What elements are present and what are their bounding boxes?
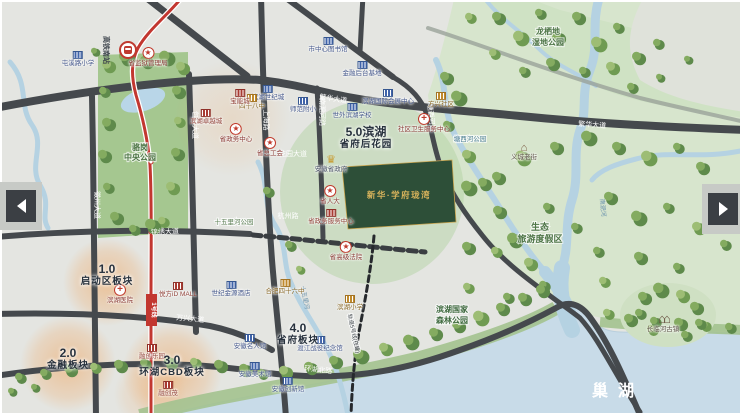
poi-icon: [263, 85, 273, 93]
map-poi: ⌂⌂ 长临河古镇: [647, 313, 680, 333]
poi-icon: ★: [142, 47, 154, 59]
poi-icon: [280, 279, 290, 287]
frame-top: [0, 0, 740, 2]
map-poi: 安徽创新馆: [272, 377, 305, 393]
poi-icon: [283, 377, 293, 385]
poi-icon: ⌂⌂: [658, 313, 668, 325]
poi-label: 安徽创新馆: [272, 386, 305, 393]
poi-label: 省高级法院: [330, 254, 363, 261]
poi-icon: [323, 37, 333, 45]
poi-label: 悦方iD MALL: [159, 291, 197, 298]
map-stage: 新华·学府珑湾 繁华大道繁华大道锦绣大道万兴大道花园大道杭州路环湖北路徽州大道包…: [0, 0, 740, 418]
area-label: 塘西河公园: [454, 134, 487, 143]
poi-icon: ★: [340, 241, 352, 253]
area-label: 十五里河公园: [215, 217, 254, 226]
poi-label: 省人大: [320, 198, 340, 205]
map-poi: ★ 省政务中心: [220, 123, 253, 143]
area-label: 滨湖国家: [436, 304, 469, 314]
poi-icon: [73, 51, 83, 59]
map-poi: + 滨湖医院: [107, 284, 133, 304]
poi-icon: ★: [324, 185, 336, 197]
poi-icon: +: [418, 113, 430, 125]
area-label: 森林公园: [436, 315, 468, 325]
poi-icon: [173, 282, 183, 290]
poi-label: 省政务中心: [220, 136, 253, 143]
poi-label: 方兴社区: [428, 101, 454, 108]
map-poi: 世纪金源酒店: [212, 281, 251, 297]
poi-label: 合肥四十六中: [266, 288, 305, 295]
area-label: 龙栖地: [535, 26, 560, 36]
map-poi: 屯溪路小学: [62, 51, 95, 67]
district-section-label: 2.0 金融板块: [47, 347, 89, 371]
poi-icon: [357, 61, 367, 69]
map-poi: ★ 省高级法院: [330, 241, 363, 261]
poi-label: 长临河古镇: [647, 326, 680, 333]
area-label: 中央公园: [124, 152, 156, 162]
road-label: 上海路: [262, 110, 271, 131]
poi-label: 屯溪路小学: [62, 60, 95, 67]
poi-label: 省总工会: [257, 150, 283, 157]
poi-icon: [347, 103, 357, 111]
district-section-label: 3.0 环湖CBD板块: [139, 354, 205, 378]
road-label: 徽州大道: [93, 191, 102, 219]
map-poi: ⌂ 义城老街: [511, 143, 537, 161]
left-arrow-icon: [17, 199, 26, 213]
hsr-station-icon: [119, 41, 137, 59]
poi-icon: [345, 295, 355, 303]
map-poi: 世外滨湖学校: [333, 103, 372, 119]
road-label: 杭州路: [278, 211, 299, 220]
road-label: 南淝河路: [318, 98, 327, 126]
map-poi: ★ 省总工会: [257, 137, 283, 157]
poi-label: 金融后台基地: [343, 70, 382, 77]
project-parcel: 新华·学府珑湾: [342, 160, 456, 229]
poi-label: 安徽名人馆: [234, 343, 267, 350]
area-label: 湿地公园: [532, 37, 564, 47]
poi-icon: ♛: [326, 155, 336, 165]
poi-label: 省监狱管理局: [129, 60, 168, 67]
poi-icon: ⌂: [521, 143, 528, 153]
map-poi: + 社区卫生服务中心: [398, 113, 450, 133]
district-section-label: 5.0滨湖 省府后花园: [340, 126, 393, 150]
poi-icon: [163, 381, 173, 389]
area-label: 生态: [531, 221, 549, 232]
poi-icon: [250, 362, 260, 370]
poi-icon: [298, 97, 308, 105]
poi-label: 滨湖医院: [107, 297, 133, 304]
poi-label: 滨湖卓越城: [190, 118, 223, 125]
map-poi: 安徽名人馆: [234, 334, 267, 350]
map-poi: 金融后台基地: [343, 61, 382, 77]
frame-bottom: [0, 413, 740, 418]
poi-icon: [147, 344, 157, 352]
poi-label: 安徽省政府: [315, 166, 348, 173]
poi-label: 义城老街: [511, 154, 537, 161]
area-label: 1号线: [150, 302, 158, 317]
map-poi: ♛ 安徽省政府: [315, 155, 348, 173]
poi-label: 省政务服务中心: [308, 218, 354, 225]
map-poi: 省政务服务中心: [308, 209, 354, 225]
poi-label: 市中心图书馆: [309, 46, 348, 53]
project-name: 新华·学府珑湾: [367, 190, 431, 200]
poi-icon: [201, 109, 211, 117]
area-label: 骆岗: [132, 142, 148, 152]
poi-icon: ★: [264, 137, 276, 149]
map-poi: ★ 省人大: [320, 185, 340, 205]
map-poi: 安徽美术馆: [239, 362, 272, 378]
poi-label: 融创茂: [158, 390, 178, 397]
map-poi: 方兴社区: [428, 92, 454, 108]
poi-label: 安徽美术馆: [239, 371, 272, 378]
map-poi: 合肥四十六中: [266, 279, 305, 295]
map-poi: 宝能城: [230, 89, 250, 105]
poi-label: 社区卫生服务中心: [398, 126, 450, 133]
poi-label: 世纪金源酒店: [212, 290, 251, 297]
poi-label: 渡江战役纪念馆: [297, 345, 343, 352]
poi-label: 师范附小: [290, 106, 316, 113]
area-label: 旅游度假区: [517, 233, 562, 244]
train-icon: [124, 46, 132, 54]
district-section-label: 1.0 启动区板块: [81, 263, 134, 287]
poi-icon: [226, 281, 236, 289]
poi-icon: [245, 334, 255, 342]
poi-icon: ★: [230, 123, 242, 135]
poi-label: 宝能城: [230, 98, 250, 105]
map-poi: 师范附小: [290, 97, 316, 113]
map-poi: 融创茂: [158, 381, 178, 397]
poi-label: 滨湖国际会展中心: [362, 98, 414, 105]
poi-icon: [326, 209, 336, 217]
map-poi: 滨湖国际会展中心: [362, 89, 414, 105]
poi-label: 滨湖小学: [337, 304, 363, 311]
carousel-prev-button[interactable]: [6, 190, 36, 222]
right-arrow-icon: [719, 202, 728, 216]
map-poi: 市中心图书馆: [309, 37, 348, 53]
road-label: 花园大道: [279, 149, 307, 158]
map-poi: 滨湖小学: [337, 295, 363, 311]
map-poi: 悦方iD MALL: [159, 282, 197, 298]
carousel-next-button[interactable]: [708, 193, 738, 225]
district-section-label: 4.0 省府板块: [277, 322, 319, 346]
poi-icon: [436, 92, 446, 100]
area-label: 高铁南站: [102, 36, 111, 64]
poi-icon: [235, 89, 245, 97]
map-poi: 滨湖卓越城: [190, 109, 223, 125]
area-label: 巢湖: [591, 381, 644, 400]
poi-label: 世外滨湖学校: [333, 112, 372, 119]
poi-icon: [383, 89, 393, 97]
